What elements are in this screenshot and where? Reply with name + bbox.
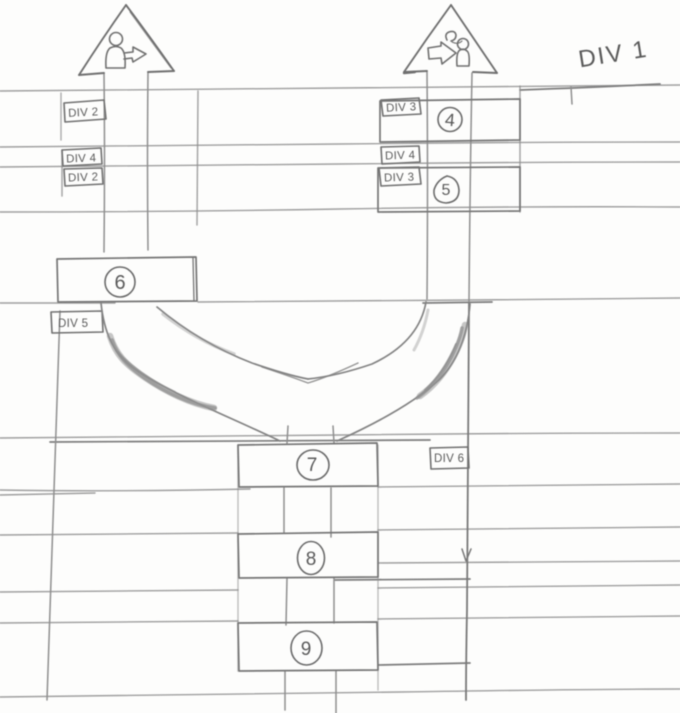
svg-text:DIV 6: DIV 6	[434, 453, 464, 465]
svg-text:DIV 3: DIV 3	[386, 101, 417, 115]
svg-text:DIV 2: DIV 2	[68, 106, 99, 120]
svg-text:DIV 5: DIV 5	[58, 318, 88, 330]
svg-text:4: 4	[444, 110, 456, 131]
svg-text:6: 6	[114, 272, 125, 294]
svg-text:9: 9	[301, 639, 312, 660]
svg-text:8: 8	[306, 549, 317, 570]
svg-text:7: 7	[307, 455, 318, 476]
svg-text:5: 5	[442, 182, 451, 199]
svg-text:DIV 2: DIV 2	[68, 171, 99, 184]
svg-text:DIV 1: DIV 1	[577, 36, 650, 74]
svg-text:DIV 4: DIV 4	[66, 152, 97, 165]
svg-text:DIV 4: DIV 4	[385, 149, 416, 162]
svg-text:DIV 3: DIV 3	[384, 172, 415, 185]
